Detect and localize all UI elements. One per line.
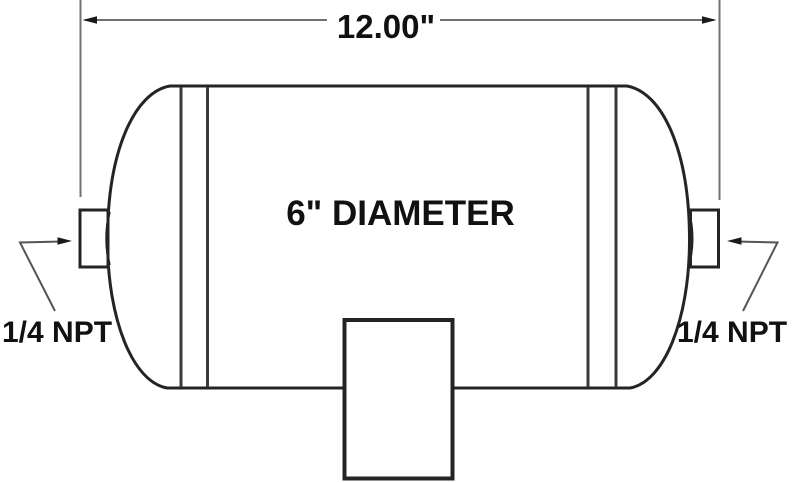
air-tank-diagram-page: 12.00" 6" DIAMETER 1/4 NPT 1/4 NPT [0, 0, 800, 483]
port-right-label: 1/4 NPT [677, 316, 787, 349]
diameter-label: 6" DIAMETER [286, 194, 515, 233]
left-port-fitting [80, 210, 108, 267]
dimension-arrow-left-icon [83, 16, 98, 24]
overall-length-label: 12.00" [337, 8, 435, 45]
air-tank-diagram: 12.00" 6" DIAMETER 1/4 NPT 1/4 NPT [0, 0, 800, 483]
leader-arrow-right-icon [727, 237, 742, 245]
port-left-label: 1/4 NPT [2, 316, 112, 349]
dimension-arrow-right-icon [702, 16, 717, 24]
leader-arrow-left-icon [58, 237, 73, 245]
right-port-fitting [691, 210, 719, 267]
bottom-mount-port [345, 320, 453, 479]
leader-line-right [736, 242, 778, 312]
leader-line-left [20, 242, 62, 312]
